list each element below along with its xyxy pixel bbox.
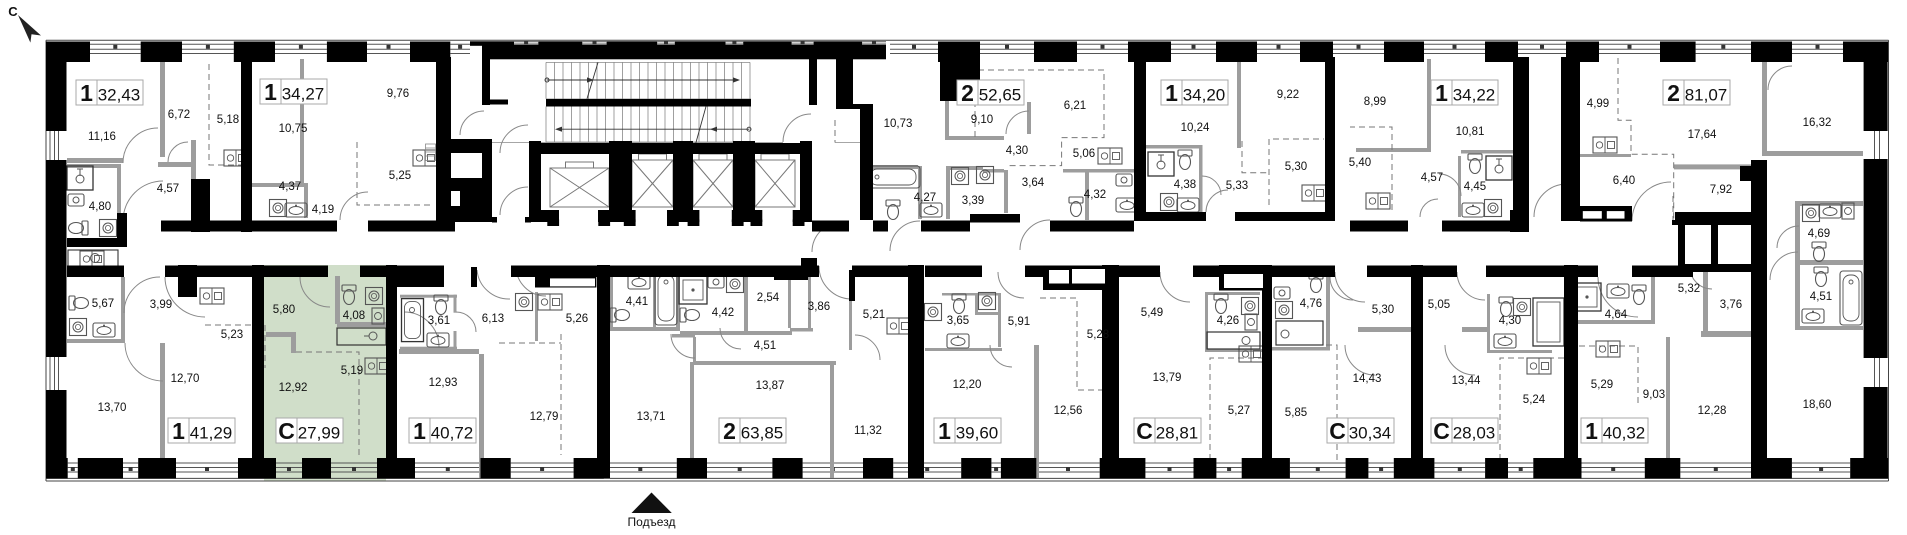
svg-text:10,81: 10,81: [1456, 126, 1485, 138]
svg-text:3,86: 3,86: [808, 301, 830, 313]
svg-text:1: 1: [264, 79, 277, 105]
svg-text:12,93: 12,93: [429, 377, 458, 389]
svg-text:4,80: 4,80: [89, 201, 111, 213]
svg-text:4,57: 4,57: [157, 183, 179, 195]
svg-text:5,80: 5,80: [273, 304, 295, 316]
svg-text:3,65: 3,65: [947, 315, 969, 327]
svg-text:13,87: 13,87: [756, 380, 785, 392]
svg-text:2: 2: [1667, 80, 1680, 106]
svg-text:5,24: 5,24: [1523, 394, 1546, 406]
svg-text:5,21: 5,21: [863, 309, 885, 321]
svg-text:1: 1: [1165, 80, 1178, 106]
svg-text:5,85: 5,85: [1285, 407, 1307, 419]
svg-text:28,03: 28,03: [1453, 423, 1496, 442]
svg-text:10,73: 10,73: [884, 118, 913, 130]
svg-text:40,72: 40,72: [431, 423, 474, 442]
svg-text:10,24: 10,24: [1181, 122, 1210, 134]
svg-text:1: 1: [938, 418, 951, 444]
svg-text:4,32: 4,32: [1084, 189, 1106, 201]
svg-text:С: С: [1136, 418, 1153, 444]
svg-text:34,22: 34,22: [1453, 85, 1496, 104]
svg-text:2: 2: [723, 418, 736, 444]
svg-text:13,79: 13,79: [1153, 372, 1182, 384]
svg-text:С: С: [1329, 418, 1346, 444]
svg-text:3,61: 3,61: [428, 315, 450, 327]
svg-text:34,20: 34,20: [1183, 85, 1226, 104]
svg-text:11,32: 11,32: [854, 425, 882, 437]
svg-text:4,42: 4,42: [712, 307, 734, 319]
svg-text:Подъезд: Подъезд: [628, 515, 676, 529]
svg-text:1: 1: [80, 80, 93, 106]
svg-text:1: 1: [1435, 80, 1448, 106]
svg-text:11,16: 11,16: [88, 131, 116, 143]
svg-text:5,33: 5,33: [1226, 180, 1248, 192]
svg-text:С: С: [8, 4, 18, 19]
svg-text:4,57: 4,57: [1421, 172, 1443, 184]
svg-text:6,72: 6,72: [168, 109, 190, 121]
svg-text:5,18: 5,18: [217, 114, 239, 126]
svg-text:13,44: 13,44: [1452, 375, 1481, 387]
svg-text:4,27: 4,27: [914, 192, 936, 204]
svg-text:5,06: 5,06: [1073, 148, 1095, 160]
svg-text:3,76: 3,76: [1720, 299, 1742, 311]
svg-text:5,25: 5,25: [389, 170, 411, 182]
svg-text:30,34: 30,34: [1349, 423, 1392, 442]
svg-text:4,30: 4,30: [1006, 145, 1028, 157]
svg-text:6,21: 6,21: [1064, 100, 1086, 112]
svg-text:41,29: 41,29: [190, 423, 233, 442]
svg-text:7,92: 7,92: [1710, 184, 1732, 196]
svg-text:5,29: 5,29: [1591, 379, 1613, 391]
svg-text:4,99: 4,99: [1587, 98, 1609, 110]
svg-text:5,23: 5,23: [221, 329, 243, 341]
svg-text:5,05: 5,05: [1428, 299, 1450, 311]
svg-text:4,26: 4,26: [1217, 315, 1239, 327]
svg-text:5,49: 5,49: [1141, 307, 1163, 319]
svg-text:14,43: 14,43: [1353, 373, 1382, 385]
svg-text:9,76: 9,76: [387, 88, 409, 100]
svg-text:3,99: 3,99: [150, 299, 172, 311]
svg-text:С: С: [1433, 418, 1450, 444]
svg-text:5,27: 5,27: [1228, 405, 1250, 417]
svg-text:4,41: 4,41: [626, 296, 648, 308]
svg-text:52,65: 52,65: [979, 85, 1022, 104]
svg-text:9,10: 9,10: [971, 114, 993, 126]
svg-text:12,79: 12,79: [530, 411, 559, 423]
svg-text:4,19: 4,19: [312, 204, 334, 216]
svg-text:13,70: 13,70: [98, 402, 127, 414]
svg-text:27,99: 27,99: [298, 423, 341, 442]
svg-text:5,28: 5,28: [1087, 329, 1109, 341]
svg-text:9,22: 9,22: [1277, 89, 1299, 101]
svg-text:5,91: 5,91: [1008, 316, 1030, 328]
svg-text:12,28: 12,28: [1698, 405, 1727, 417]
svg-text:13,71: 13,71: [637, 411, 666, 423]
svg-text:17,64: 17,64: [1688, 129, 1717, 141]
svg-text:63,85: 63,85: [741, 423, 784, 442]
svg-text:5,26: 5,26: [566, 313, 588, 325]
svg-text:1: 1: [413, 418, 426, 444]
svg-text:5,30: 5,30: [1372, 304, 1394, 316]
svg-text:4,51: 4,51: [1810, 291, 1832, 303]
svg-text:2: 2: [961, 80, 974, 106]
svg-text:4,30: 4,30: [1499, 315, 1521, 327]
svg-text:5,40: 5,40: [1349, 157, 1371, 169]
svg-text:3,39: 3,39: [962, 195, 984, 207]
svg-text:81,07: 81,07: [1685, 85, 1728, 104]
svg-text:6,13: 6,13: [482, 313, 504, 325]
svg-text:12,70: 12,70: [171, 373, 200, 385]
svg-text:40,32: 40,32: [1603, 423, 1646, 442]
svg-text:4,37: 4,37: [279, 181, 301, 193]
svg-text:5,19: 5,19: [341, 365, 363, 377]
svg-text:32,43: 32,43: [98, 85, 141, 104]
svg-text:4,38: 4,38: [1174, 179, 1196, 191]
svg-text:9,03: 9,03: [1643, 389, 1665, 401]
svg-text:12,92: 12,92: [279, 382, 308, 394]
svg-text:39,60: 39,60: [956, 423, 999, 442]
svg-text:28,81: 28,81: [1156, 423, 1199, 442]
svg-text:10,75: 10,75: [279, 123, 308, 135]
svg-text:16,32: 16,32: [1803, 117, 1832, 129]
svg-text:18,60: 18,60: [1803, 399, 1832, 411]
svg-text:4,64: 4,64: [1605, 309, 1628, 321]
svg-text:2,54: 2,54: [757, 292, 780, 304]
svg-text:6,40: 6,40: [1613, 175, 1635, 187]
svg-text:4,76: 4,76: [1300, 298, 1322, 310]
svg-text:5,32: 5,32: [1678, 283, 1700, 295]
svg-text:4,45: 4,45: [1464, 181, 1486, 193]
svg-text:12,56: 12,56: [1054, 405, 1083, 417]
svg-text:4,69: 4,69: [1808, 228, 1830, 240]
svg-text:12,20: 12,20: [953, 379, 982, 391]
svg-text:5,67: 5,67: [92, 298, 114, 310]
svg-text:5,30: 5,30: [1285, 161, 1307, 173]
svg-text:34,27: 34,27: [282, 84, 325, 103]
svg-text:С: С: [278, 418, 295, 444]
svg-text:4,08: 4,08: [343, 310, 365, 322]
svg-text:1: 1: [1585, 418, 1598, 444]
svg-text:4,51: 4,51: [754, 340, 776, 352]
svg-text:8,99: 8,99: [1364, 96, 1386, 108]
svg-text:1: 1: [172, 418, 185, 444]
svg-text:3,64: 3,64: [1022, 177, 1045, 189]
